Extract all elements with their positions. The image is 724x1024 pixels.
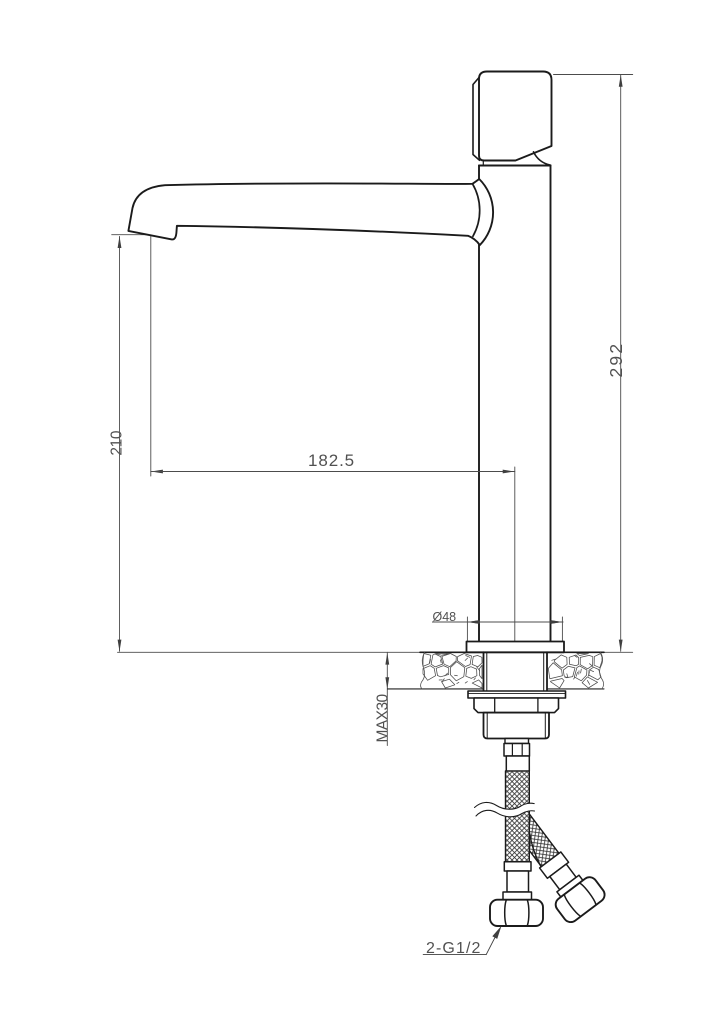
svg-text:2-G1/2: 2-G1/2: [426, 940, 482, 957]
svg-text:292: 292: [606, 342, 626, 378]
svg-text:182.5: 182.5: [308, 451, 355, 470]
svg-text:210: 210: [108, 430, 125, 455]
svg-text:MAX30: MAX30: [375, 693, 392, 742]
